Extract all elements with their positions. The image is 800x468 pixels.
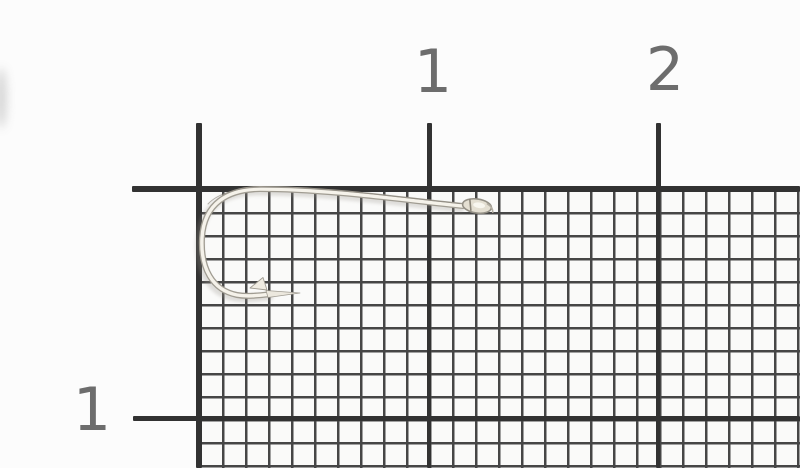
photo-fishing-hook-on-graph-paper: 1 2 1 <box>0 0 800 468</box>
fishing-hook <box>0 0 800 468</box>
hook-barb <box>250 278 267 291</box>
hook-shadow <box>199 192 460 299</box>
hook-eye <box>462 197 495 215</box>
hook-point <box>266 291 300 298</box>
